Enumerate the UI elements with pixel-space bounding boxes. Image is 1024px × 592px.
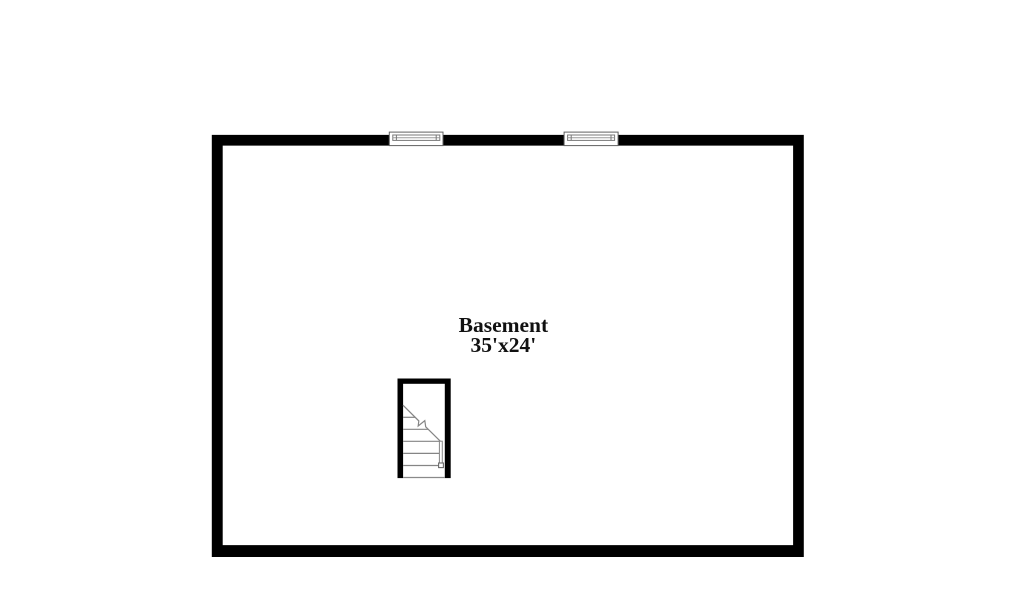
- svg-text:35'x24': 35'x24': [471, 333, 537, 357]
